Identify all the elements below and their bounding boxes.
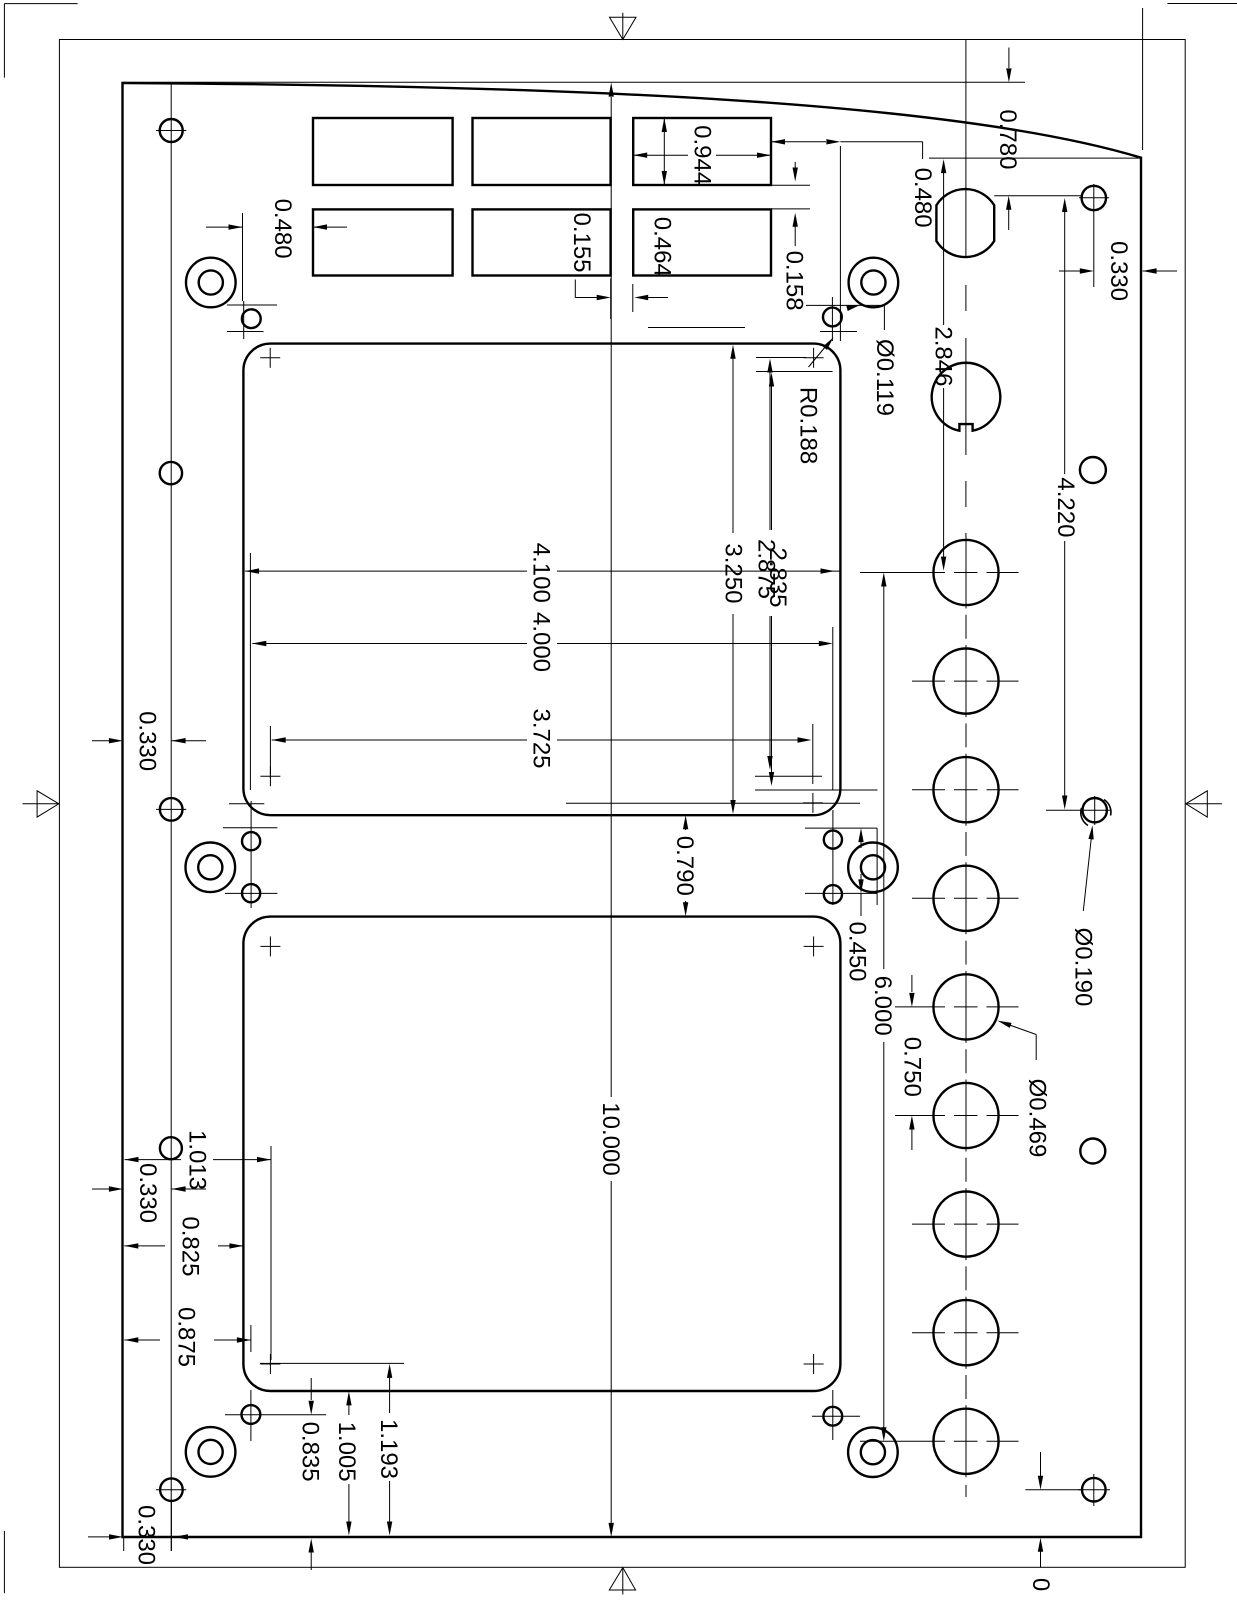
svg-text:0.464: 0.464 bbox=[648, 217, 675, 277]
svg-text:1.005: 1.005 bbox=[333, 1422, 360, 1482]
svg-text:4.000: 4.000 bbox=[528, 612, 555, 672]
svg-text:3.725: 3.725 bbox=[528, 708, 555, 768]
svg-text:0.480: 0.480 bbox=[909, 168, 936, 228]
svg-text:0.750: 0.750 bbox=[899, 1037, 926, 1097]
svg-text:6.000: 6.000 bbox=[869, 976, 896, 1036]
svg-text:4.220: 4.220 bbox=[1052, 477, 1079, 537]
svg-text:0.480: 0.480 bbox=[269, 199, 296, 259]
svg-text:0.330: 0.330 bbox=[133, 1505, 160, 1565]
svg-text:0.875: 0.875 bbox=[173, 1307, 200, 1367]
svg-text:0.944: 0.944 bbox=[688, 125, 715, 185]
svg-text:0.330: 0.330 bbox=[1105, 241, 1132, 301]
svg-text:0.158: 0.158 bbox=[781, 251, 808, 311]
svg-text:0.155: 0.155 bbox=[568, 212, 595, 272]
svg-text:3.250: 3.250 bbox=[720, 543, 747, 603]
svg-text:R0.188: R0.188 bbox=[795, 387, 822, 464]
svg-text:1.013: 1.013 bbox=[184, 1130, 211, 1190]
svg-text:4.100: 4.100 bbox=[528, 543, 555, 603]
svg-text:2.835: 2.835 bbox=[764, 547, 791, 607]
svg-text:0.835: 0.835 bbox=[297, 1422, 324, 1482]
svg-text:0: 0 bbox=[1027, 1578, 1054, 1591]
svg-text:0.330: 0.330 bbox=[134, 1163, 161, 1223]
svg-text:Ø0.119: Ø0.119 bbox=[871, 339, 898, 416]
svg-text:Ø0.190: Ø0.190 bbox=[1070, 928, 1097, 1007]
svg-text:0.825: 0.825 bbox=[177, 1216, 204, 1276]
svg-text:0.780: 0.780 bbox=[994, 109, 1021, 169]
svg-text:2.846: 2.846 bbox=[930, 326, 957, 386]
svg-text:0.450: 0.450 bbox=[843, 921, 870, 981]
svg-text:1.193: 1.193 bbox=[375, 1419, 402, 1479]
svg-text:10.000: 10.000 bbox=[597, 1102, 624, 1175]
svg-text:0.790: 0.790 bbox=[671, 836, 698, 896]
svg-text:0.330: 0.330 bbox=[134, 711, 161, 771]
svg-text:Ø0.469: Ø0.469 bbox=[1023, 1079, 1050, 1158]
